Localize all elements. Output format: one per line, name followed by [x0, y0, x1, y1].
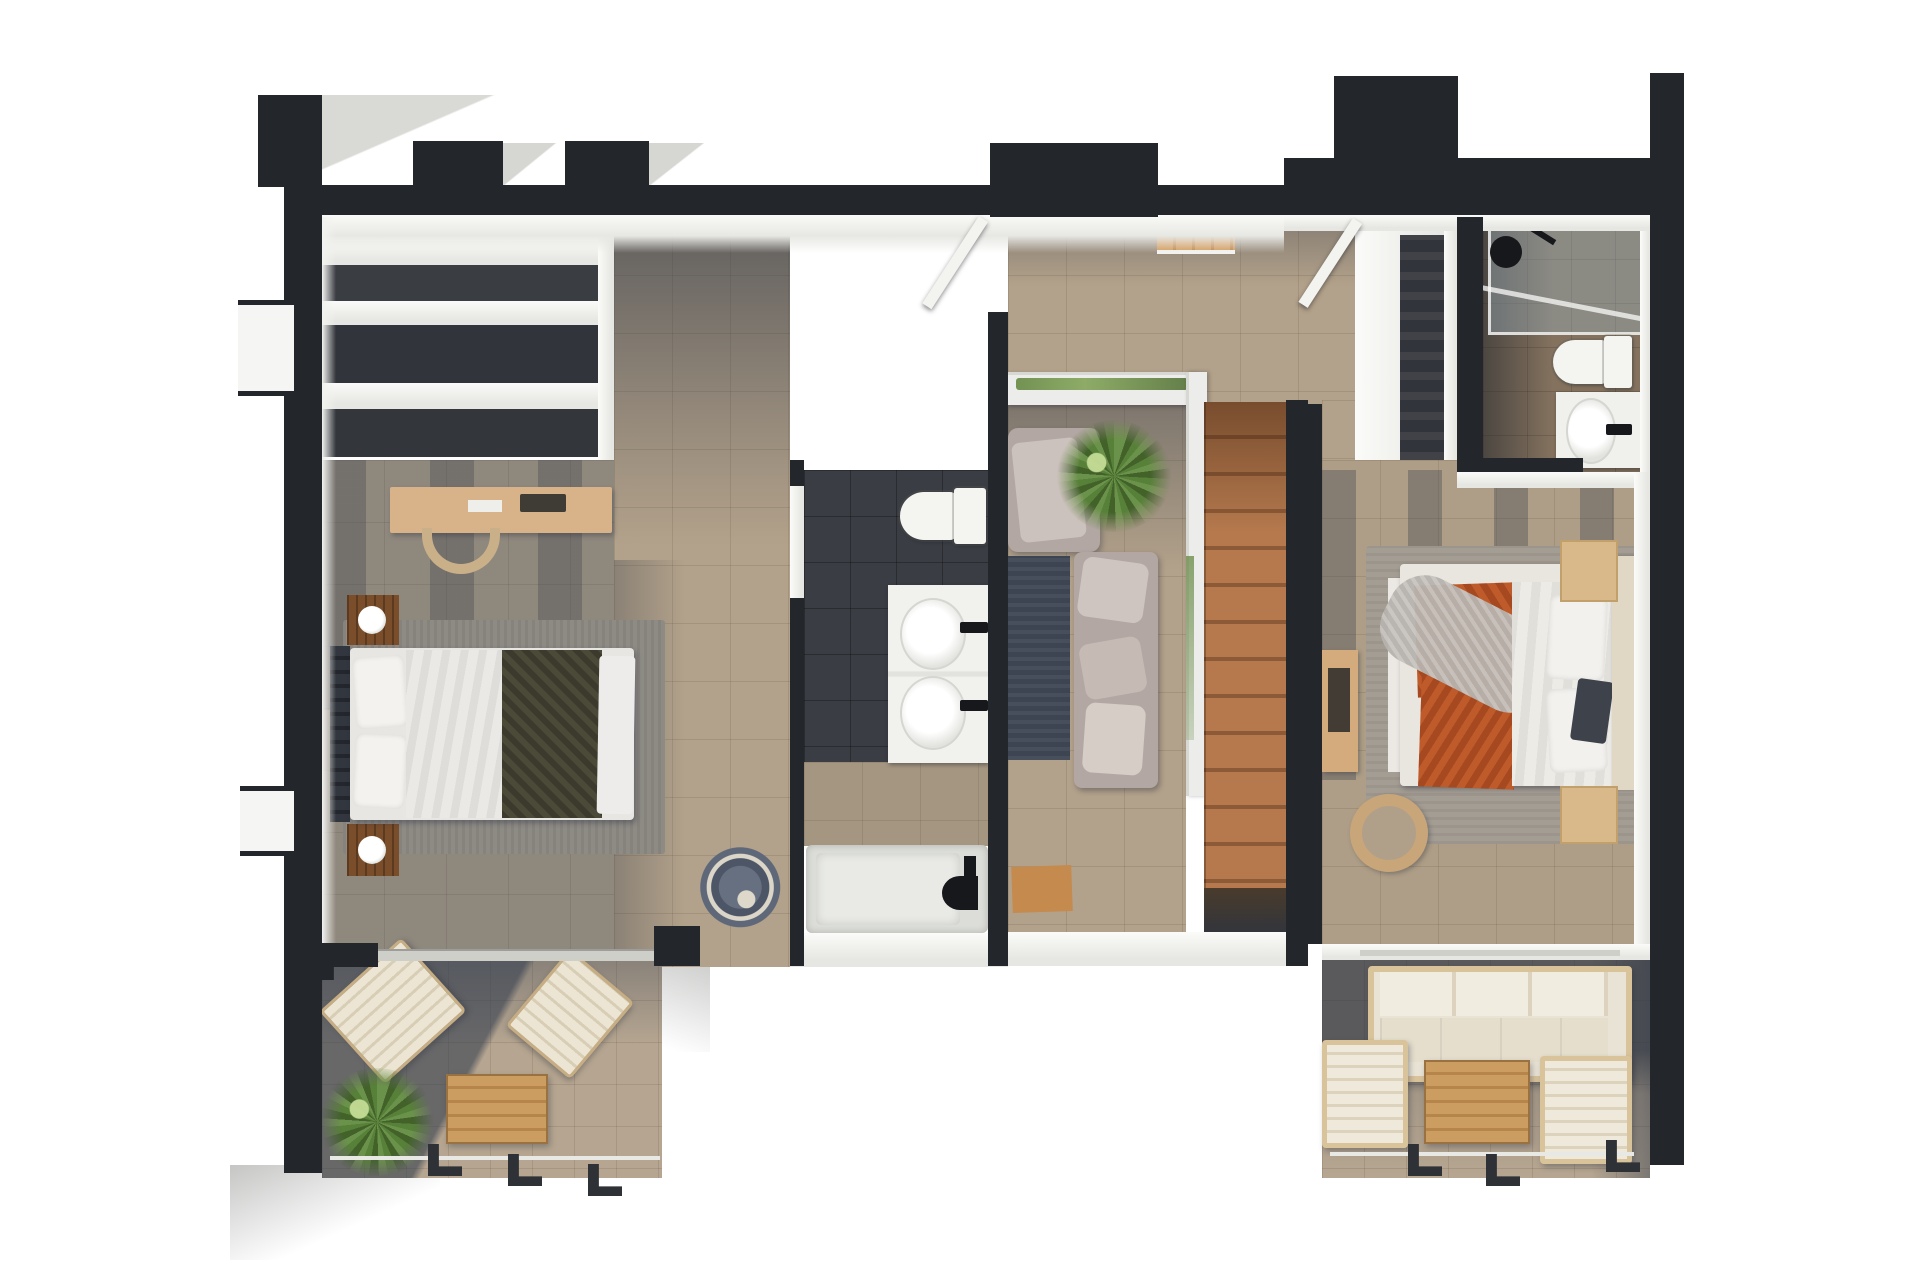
desk-right-items — [1328, 668, 1350, 732]
bathroom-center-bottom-face — [790, 933, 1008, 967]
faucet-center-a — [960, 622, 988, 633]
terrace-left-edge — [330, 1156, 660, 1160]
terrace-left-table — [446, 1074, 548, 1144]
nightstand-right-bottom — [1560, 786, 1618, 844]
terrace-right-table — [1424, 1060, 1530, 1144]
wall-divider-hall-landing — [988, 312, 1008, 966]
wardrobe-interior — [1400, 235, 1444, 460]
landing-sofa-pillow-c — [1082, 702, 1147, 776]
staircase-top-shadow — [1204, 402, 1286, 532]
lamp-left-top — [358, 606, 386, 634]
sink-center-b — [900, 676, 966, 750]
balustrade-planter — [1016, 378, 1188, 390]
faucet-ensuite — [1606, 424, 1632, 435]
wall-bedroom-left-stub — [654, 926, 700, 966]
wall-ensuite-bottom — [1457, 458, 1583, 472]
terrace-right-edge — [1330, 1152, 1634, 1156]
wall-crenel-3 — [990, 143, 1158, 217]
wall-left — [284, 95, 322, 1173]
papasan-chair — [698, 846, 786, 932]
bedroom-right-slider-rail — [1360, 950, 1620, 956]
faucet-center-b — [960, 700, 988, 711]
exterior-shadow-top-b — [649, 143, 705, 187]
sink-center-a — [900, 598, 966, 670]
desk-left-monitor — [520, 494, 566, 512]
bed-right-pillow-a — [1546, 595, 1608, 682]
bathtub-faucet-stem — [964, 856, 976, 884]
window-niche-left-upper — [238, 300, 294, 396]
bed-left-pillow-top — [352, 654, 409, 729]
landing-sofa-pillow-b — [1078, 635, 1149, 701]
wall-crenel-4 — [1334, 76, 1458, 160]
closet-end-cap — [598, 217, 614, 460]
exterior-shadow-bottomleft — [230, 1165, 440, 1260]
closet-shelf-1-top — [322, 265, 598, 301]
wardrobe-edge — [1444, 229, 1457, 460]
landing-sofa-pillow-a — [1076, 556, 1150, 625]
closet-shelf-3-top — [322, 409, 598, 457]
outdoor-armchair-a — [1322, 1040, 1408, 1148]
bed-left-pillow-bottom — [352, 733, 408, 810]
wall-bedroom-right-left — [1302, 404, 1322, 944]
left-wall-inner-face — [322, 217, 336, 957]
bedroom-right-east-face — [1634, 472, 1650, 944]
wall-top-right — [1284, 158, 1658, 215]
exterior-shadow-top-a — [503, 143, 557, 187]
bed-left-blanket-olive — [502, 650, 602, 818]
ensuite-bottom-face — [1457, 472, 1650, 488]
landing-rug — [1008, 556, 1070, 760]
landing-doormat — [1011, 865, 1073, 913]
floor-plan — [0, 0, 1920, 1280]
toilet-ensuite-bowl — [1553, 340, 1609, 384]
closet-shelf-3-front — [322, 383, 598, 409]
bedroom-left-slider-rail — [378, 949, 654, 961]
wall-wardrobe-ensuite — [1457, 217, 1483, 460]
nightstand-right-top — [1560, 540, 1618, 602]
chair-right — [1350, 794, 1428, 872]
toilet-ensuite-tank — [1604, 336, 1632, 388]
bathroom-center-floor-lower — [804, 762, 988, 846]
wall-bedroom-left-bottom — [284, 943, 378, 967]
staircase-bottom-gap — [1204, 888, 1286, 932]
wall-crenel-1 — [413, 141, 503, 187]
wall-right — [1650, 73, 1684, 1165]
bathroom-door-frame — [790, 486, 804, 598]
stair-bottom-face — [1008, 932, 1286, 966]
top-wall-inner-face — [284, 215, 1284, 253]
bed-left-throw-white — [597, 656, 636, 815]
wall-bathroom-left-jamb — [790, 460, 804, 486]
toilet-center-tank — [954, 488, 986, 544]
outdoor-armchair-b — [1540, 1056, 1632, 1164]
hallway-shadow — [614, 217, 790, 547]
balustrade-vertical-plants — [1186, 556, 1194, 740]
wall-crenel-2 — [565, 141, 649, 187]
window-niche-left-lower — [240, 786, 294, 856]
bathtub-basin — [816, 853, 960, 925]
ensuite-right-edge — [1640, 215, 1650, 472]
lamp-left-bottom — [358, 836, 386, 864]
landing-palm-plant — [1056, 420, 1172, 532]
toilet-center-bowl — [900, 492, 958, 540]
closet-shelf-2-top — [322, 325, 598, 383]
desk-left-papers — [468, 500, 502, 512]
shower-head — [1490, 236, 1522, 268]
outdoor-sofa-back-cushions — [1380, 972, 1608, 1016]
wall-bathroom-left — [790, 598, 804, 966]
closet-shelf-2-front — [322, 301, 598, 325]
